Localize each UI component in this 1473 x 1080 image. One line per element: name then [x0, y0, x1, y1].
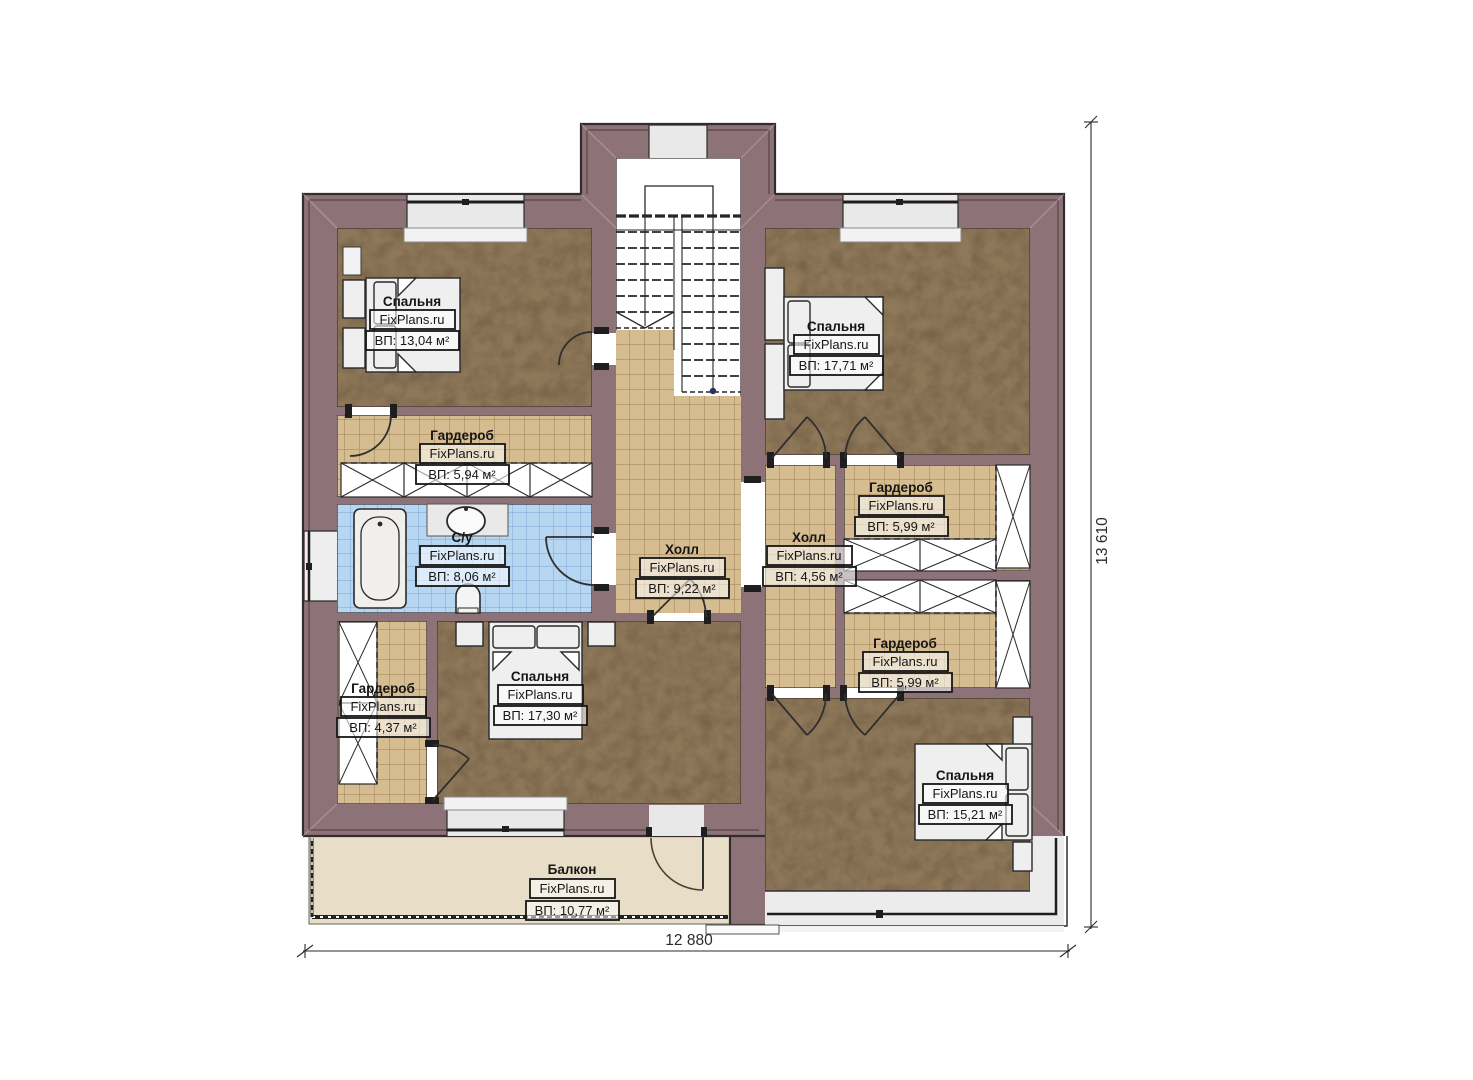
- svg-text:FixPlans.ru: FixPlans.ru: [868, 498, 933, 513]
- svg-text:Холл: Холл: [665, 542, 699, 557]
- svg-text:Гардероб: Гардероб: [351, 681, 415, 696]
- svg-text:FixPlans.ru: FixPlans.ru: [429, 548, 494, 563]
- svg-text:FixPlans.ru: FixPlans.ru: [803, 337, 868, 352]
- svg-text:Балкон: Балкон: [548, 862, 597, 877]
- svg-text:FixPlans.ru: FixPlans.ru: [507, 687, 572, 702]
- svg-text:FixPlans.ru: FixPlans.ru: [379, 312, 444, 327]
- svg-text:FixPlans.ru: FixPlans.ru: [872, 654, 937, 669]
- svg-text:ВП: 4,37 м²: ВП: 4,37 м²: [349, 720, 417, 735]
- svg-text:ВП: 17,71 м²: ВП: 17,71 м²: [799, 358, 874, 373]
- svg-text:Гардероб: Гардероб: [873, 636, 937, 651]
- svg-text:ВП: 13,04 м²: ВП: 13,04 м²: [375, 333, 450, 348]
- svg-text:ВП: 5,94 м²: ВП: 5,94 м²: [428, 467, 496, 482]
- svg-text:Спальня: Спальня: [807, 319, 865, 334]
- svg-text:ВП: 9,22 м²: ВП: 9,22 м²: [648, 581, 716, 596]
- svg-text:FixPlans.ru: FixPlans.ru: [649, 560, 714, 575]
- svg-text:FixPlans.ru: FixPlans.ru: [539, 881, 604, 896]
- svg-text:FixPlans.ru: FixPlans.ru: [350, 699, 415, 714]
- svg-text:Гардероб: Гардероб: [430, 428, 494, 443]
- svg-text:FixPlans.ru: FixPlans.ru: [932, 786, 997, 801]
- svg-text:Спальня: Спальня: [383, 294, 441, 309]
- svg-text:С/у: С/у: [451, 530, 473, 545]
- svg-text:ВП: 5,99 м²: ВП: 5,99 м²: [867, 519, 935, 534]
- svg-text:12 880: 12 880: [665, 932, 713, 949]
- svg-text:Спальня: Спальня: [936, 768, 994, 783]
- svg-text:FixPlans.ru: FixPlans.ru: [776, 548, 841, 563]
- svg-text:FixPlans.ru: FixPlans.ru: [429, 446, 494, 461]
- svg-text:Гардероб: Гардероб: [869, 480, 933, 495]
- svg-text:ВП: 10,77 м²: ВП: 10,77 м²: [535, 903, 610, 918]
- svg-text:Холл: Холл: [792, 530, 826, 545]
- svg-text:Спальня: Спальня: [511, 669, 569, 684]
- svg-text:ВП: 15,21 м²: ВП: 15,21 м²: [928, 807, 1003, 822]
- svg-text:ВП: 17,30 м²: ВП: 17,30 м²: [503, 708, 578, 723]
- svg-text:ВП: 5,99 м²: ВП: 5,99 м²: [871, 675, 939, 690]
- svg-text:ВП: 4,56 м²: ВП: 4,56 м²: [775, 569, 843, 584]
- svg-text:13 610: 13 610: [1094, 517, 1111, 565]
- svg-text:ВП: 8,06 м²: ВП: 8,06 м²: [428, 569, 496, 584]
